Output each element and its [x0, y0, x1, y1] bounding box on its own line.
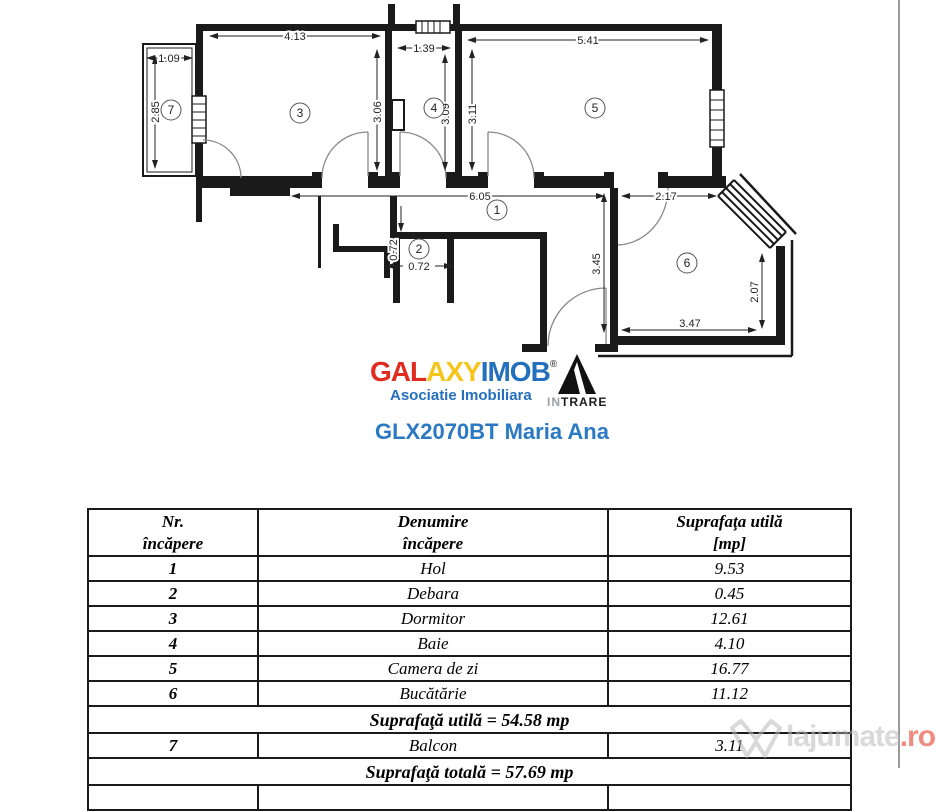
- cell-suprafata: 3.11: [608, 733, 851, 758]
- dim-label: 3.45: [591, 253, 603, 274]
- cell-denumire: Hol: [258, 556, 608, 581]
- balcony-window: [192, 96, 206, 143]
- svg-text:3: 3: [297, 106, 304, 120]
- cell-nr: 2: [88, 581, 258, 606]
- total-suprafata: Suprafaţă totală = 57.69 mp: [88, 758, 851, 785]
- page-edge-line: [898, 0, 900, 768]
- header-suprafata: Suprafaţa utilă[mp]: [608, 509, 851, 556]
- brand-part-imob: IMOB: [481, 356, 550, 387]
- table-row: 3 Dormitor 12.61: [88, 606, 851, 631]
- cell-suprafata: 12.61: [608, 606, 851, 631]
- cell-nr: 6: [88, 681, 258, 706]
- cell-suprafata: 9.53: [608, 556, 851, 581]
- cell-nr: 1: [88, 556, 258, 581]
- cell-empty: [608, 785, 851, 810]
- total-row: Suprafaţă totală = 57.69 mp: [88, 758, 851, 785]
- cell-suprafata: 16.77: [608, 656, 851, 681]
- cell-denumire: Baie: [258, 631, 608, 656]
- dim-label: 5.41: [577, 35, 598, 47]
- entrance-label-in: IN: [547, 395, 561, 409]
- dim-label: 2.07: [749, 281, 761, 302]
- room-3-dormitor: 3: [290, 103, 310, 123]
- subtotal-utila: Suprafaţă utilă = 54.58 mp: [88, 706, 851, 733]
- table-row: 1 Hol 9.53: [88, 556, 851, 581]
- cell-suprafata: 4.10: [608, 631, 851, 656]
- dim-label: 3.47: [679, 318, 700, 330]
- cell-suprafata: 11.12: [608, 681, 851, 706]
- cell-nr: 3: [88, 606, 258, 631]
- entrance-marker: INTRARE: [547, 353, 607, 409]
- svg-text:5: 5: [592, 101, 599, 115]
- room-5-camera-de-zi: 5: [585, 98, 605, 118]
- room-1-hol: 1: [487, 200, 507, 220]
- wall-notch: [392, 100, 404, 130]
- room-4-baie: 4: [424, 98, 444, 118]
- subtotal-row: Suprafaţă utilă = 54.58 mp: [88, 706, 851, 733]
- svg-text:2: 2: [416, 242, 423, 256]
- cell-denumire: Dormitor: [258, 606, 608, 631]
- room-7-balcon: 7: [161, 100, 181, 120]
- cell-denumire: Camera de zi: [258, 656, 608, 681]
- dim-label: 3.11: [467, 104, 479, 125]
- table-row: 4 Baie 4.10: [88, 631, 851, 656]
- livingroom-window: [710, 90, 724, 147]
- header-denumire: Denumireîncăpere: [258, 509, 608, 556]
- table-row-partial: [88, 785, 851, 810]
- room-2-debara: 2: [409, 239, 429, 259]
- svg-text:7: 7: [168, 103, 175, 117]
- table-row: 7 Balcon 3.11: [88, 733, 851, 758]
- svg-text:4: 4: [431, 101, 438, 115]
- cell-denumire: Debara: [258, 581, 608, 606]
- svg-text:1: 1: [494, 203, 501, 217]
- cell-nr: 7: [88, 733, 258, 758]
- table-row: 5 Camera de zi 16.77: [88, 656, 851, 681]
- dim-label: 3.06: [372, 101, 384, 122]
- cell-empty: [258, 785, 608, 810]
- brand-part-gal: GAL: [370, 356, 426, 387]
- walls: [196, 4, 785, 352]
- cell-nr: 5: [88, 656, 258, 681]
- cell-denumire: Balcon: [258, 733, 608, 758]
- table-header-row: Nr.încăpere Denumireîncăpere Suprafaţa u…: [88, 509, 851, 556]
- header-nr: Nr.încăpere: [88, 509, 258, 556]
- watermark-tld: .ro: [900, 720, 935, 753]
- entrance-triangle-icon: [555, 353, 599, 395]
- cell-empty: [88, 785, 258, 810]
- dim-label: 4.13: [284, 31, 305, 43]
- cell-suprafata: 0.45: [608, 581, 851, 606]
- entrance-label: INTRARE: [547, 395, 607, 409]
- dim-label: 2.85: [150, 101, 162, 122]
- entrance-label-trare: TRARE: [561, 395, 607, 409]
- dim-label: 2.17: [655, 191, 676, 203]
- table-row: 6 Bucătărie 11.12: [88, 681, 851, 706]
- areas-table: Nr.încăpere Denumireîncăpere Suprafaţa u…: [87, 508, 852, 811]
- cell-denumire: Bucătărie: [258, 681, 608, 706]
- listing-title: GLX2070BT Maria Ana: [375, 419, 695, 445]
- dim-label: 0.72: [408, 261, 429, 273]
- cell-nr: 4: [88, 631, 258, 656]
- listing-image: { "plan": { "dims": { "d1_09": "1.09", "…: [0, 0, 938, 768]
- dim-label: 1.09: [158, 53, 179, 65]
- room-6-bucatarie: 6: [677, 253, 697, 273]
- svg-text:6: 6: [684, 256, 691, 270]
- dim-label: 1.39: [413, 43, 434, 55]
- table-row: 2 Debara 0.45: [88, 581, 851, 606]
- brand-part-axy: AXY: [426, 356, 481, 387]
- bathroom-window: [416, 21, 450, 33]
- dim-label: 0.72: [388, 239, 400, 260]
- dim-label: 6.05: [469, 191, 490, 203]
